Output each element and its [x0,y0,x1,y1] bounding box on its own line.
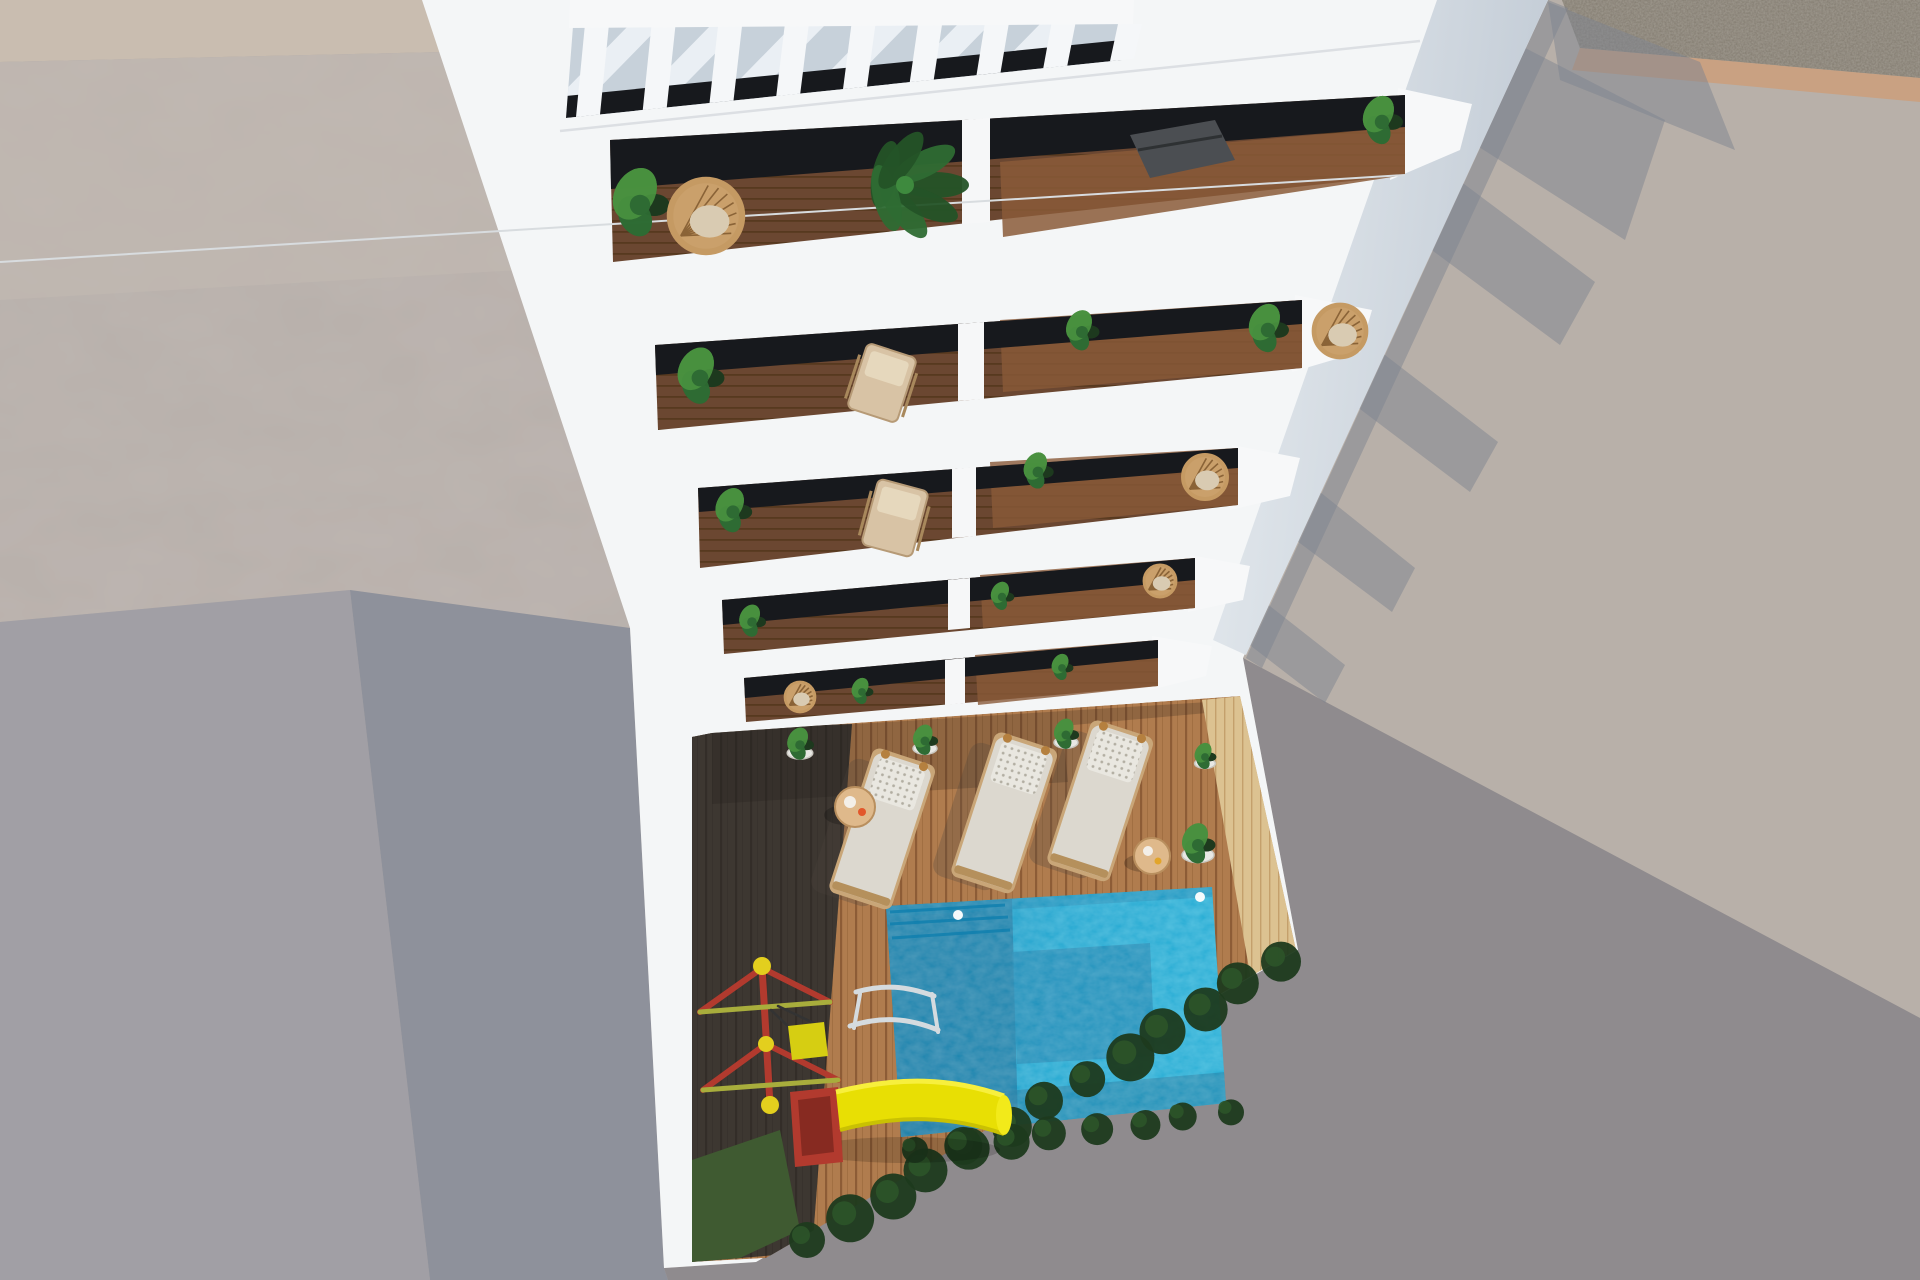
shrub [1069,1061,1105,1097]
wicker-chair [1144,565,1176,597]
wicker-chair [1314,305,1366,357]
shrub [1081,1113,1113,1145]
leaf [1058,664,1066,672]
pool-light [1195,892,1205,902]
rendered-scene [0,0,1920,1280]
shrub-foliage [1170,1105,1184,1119]
balcony-divider [948,578,970,630]
slide-platform-inner [798,1096,834,1156]
leaf [726,505,739,518]
wicker-cushion [1195,470,1219,490]
shrub-foliage [1072,1065,1090,1083]
leaf [747,617,757,627]
shrub-foliage [1219,1101,1232,1114]
shrub [1169,1103,1197,1131]
shrub [789,1222,825,1258]
shrub-foliage [1189,993,1211,1015]
shrub-foliage [1132,1113,1147,1128]
leaf [998,593,1006,601]
shrub-foliage [1112,1040,1136,1064]
frame-cap [761,1096,779,1114]
balcony-divider [962,118,990,224]
balcony-divider [945,658,965,705]
leaf [1192,839,1204,851]
frame-cap [753,957,771,975]
leaf [1076,326,1088,338]
leaf [1062,731,1071,740]
leaf [692,370,709,387]
wicker-cushion [1153,576,1171,590]
pool-light [953,910,963,920]
shrub [1130,1110,1160,1140]
leaf [1201,753,1209,761]
wicker-chair [670,180,742,252]
shrub [1032,1116,1066,1150]
shrub-foliage [1145,1015,1168,1038]
leaf [858,688,866,696]
swing-seat [788,1022,828,1060]
shrub-foliage [1083,1116,1099,1132]
banana-leaf [896,176,914,194]
shrub-foliage [792,1226,810,1244]
tan-roof-strip [0,0,448,62]
shrub-foliage [1221,968,1242,989]
wicker-cushion [793,693,810,707]
balcony-divider [952,467,976,538]
shrub [1261,942,1301,982]
leaf [1033,467,1044,478]
shrub-foliage [832,1201,856,1225]
concrete-highlight [0,52,520,300]
balcony-divider [958,322,984,401]
shrub-foliage [1029,1086,1048,1105]
shrub [826,1194,874,1242]
pergola-top-rail [569,0,1134,28]
shrub [1217,962,1259,1004]
leaf [795,740,805,750]
leaf [1261,323,1275,337]
shrub [1218,1099,1244,1125]
leaf [630,195,650,215]
shrub-foliage [1034,1120,1051,1137]
wicker-cushion [690,205,730,237]
shrub-foliage [876,1180,899,1203]
wicker-cushion [1328,323,1357,346]
wicker-chair [1183,455,1227,499]
shrub [1025,1082,1063,1120]
shrub-foliage [1265,947,1285,967]
shrub [1140,1008,1186,1054]
frame-cap [758,1036,774,1052]
leaf [1375,115,1389,129]
wicker-chair [785,682,815,712]
leaf [921,737,930,746]
scene-canvas [0,0,1920,1280]
